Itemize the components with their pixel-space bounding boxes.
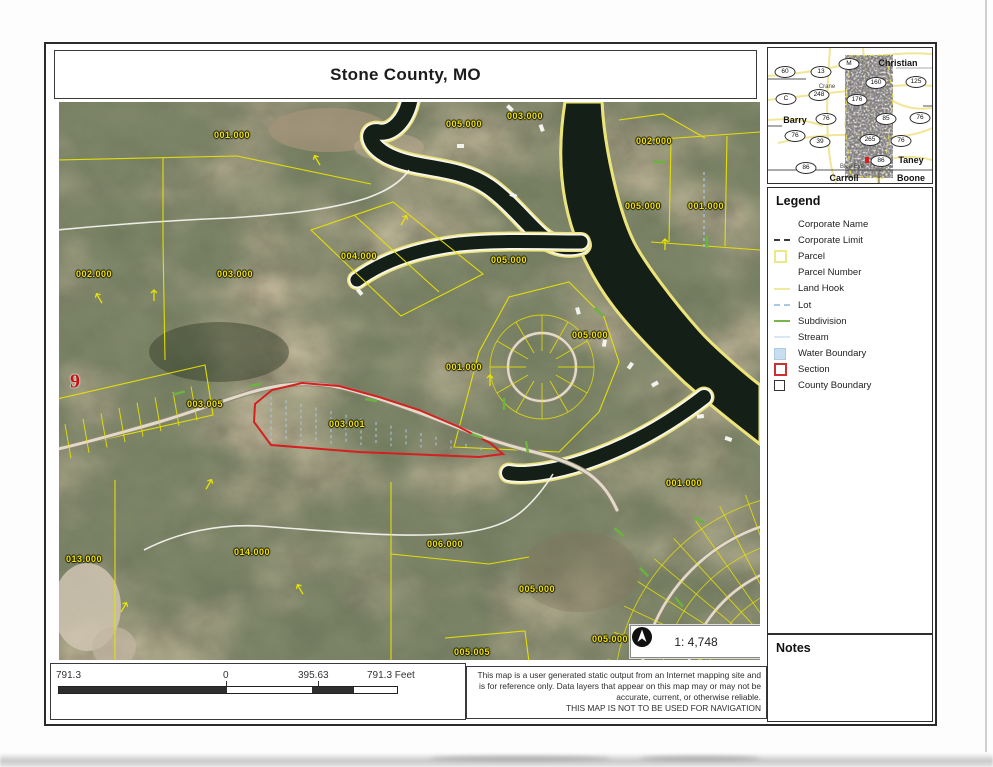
inset-route-shield: 85: [876, 113, 897, 125]
inset-county-label: Carroll: [829, 173, 858, 183]
legend-line-lightblue-icon: [774, 336, 790, 338]
scalebar-bar: [58, 686, 398, 694]
scalebar-segment: [354, 687, 397, 693]
legend-item-label: Section: [798, 364, 830, 375]
legend-title: Legend: [776, 194, 820, 208]
notes-title: Notes: [776, 641, 811, 655]
notes-panel: Notes: [767, 634, 933, 722]
legend-item-label: Parcel Number: [798, 267, 861, 278]
legend-item: Section: [774, 362, 928, 378]
scalebar-label-mid: 395.63: [298, 670, 329, 681]
legend-line-green-icon: [774, 320, 790, 322]
disclaimer-box: This map is a user generated static outp…: [466, 666, 767, 719]
scan-page-edge: [985, 0, 987, 752]
inset-location-marker: [865, 157, 869, 163]
inset-route-shield: 76: [785, 130, 806, 142]
legend-item-label: Corporate Limit: [798, 235, 863, 246]
scalebar-segment: [59, 687, 227, 693]
legend-item: Stream: [774, 329, 928, 345]
legend-symbol-line-yellow: [774, 288, 798, 290]
legend-symbol-line-lightblue: [774, 336, 798, 338]
legend-dashed-black-icon: [774, 239, 790, 241]
scanned-map-page: Stone County, MO: [0, 0, 993, 767]
inset-county-label: Christian: [878, 58, 917, 68]
inset-route-shield: 60: [775, 66, 796, 78]
legend-symbol-line-green: [774, 320, 798, 322]
legend-square-yellow-icon: [774, 250, 787, 263]
scan-smudge: [430, 756, 610, 761]
inset-route-shield: 76: [910, 112, 931, 124]
legend-item-label: County Boundary: [798, 380, 871, 391]
inset-route-shield: 265: [860, 134, 881, 146]
scan-smudge: [640, 756, 760, 761]
legend-item: Parcel: [774, 248, 928, 264]
legend-item-label: Stream: [798, 332, 829, 343]
legend-item: Lot: [774, 297, 928, 313]
legend-symbol-dashed-blue: [774, 304, 798, 306]
inset-route-shield: 86: [796, 162, 817, 174]
scalebar-label-zero: 0: [223, 670, 229, 681]
legend-symbol-square-yellow: [774, 250, 798, 263]
inset-route-shield: C: [776, 93, 797, 105]
legend-item: Parcel Number: [774, 265, 928, 281]
legend-item: Water Boundary: [774, 346, 928, 362]
legend-item: Corporate Limit: [774, 232, 928, 248]
boat-dock: [697, 414, 704, 419]
legend-symbol-square-fill-blue: [774, 348, 798, 360]
inset-route-shield: 76: [816, 113, 837, 125]
disclaimer-line: is for reference only. Data layers that …: [472, 681, 761, 692]
legend-symbol-square-red: [774, 363, 798, 376]
inset-route-shield: 86: [871, 155, 892, 167]
legend-item-label: Parcel: [798, 251, 825, 262]
legend-symbol-dashed-black: [774, 239, 798, 241]
inset-town-label: Blue Eye: [840, 164, 864, 170]
inset-route-shield: 76: [891, 135, 912, 147]
legend-item-label: Subdivision: [798, 316, 847, 327]
legend-item-label: Water Boundary: [798, 348, 866, 359]
inset-route-shield: 176: [847, 94, 868, 106]
inset-county-label: Taney: [898, 155, 923, 165]
legend-item: Subdivision: [774, 313, 928, 329]
scalebar-label-left: 791.3: [56, 670, 81, 681]
legend-square-black-icon: [774, 380, 785, 391]
legend-item: County Boundary: [774, 378, 928, 394]
aerial-map-canvas: [59, 102, 760, 660]
map-layout-frame: Stone County, MO: [44, 42, 937, 726]
terrain-texture: [59, 102, 760, 660]
disclaimer-line: This map is a user generated static outp…: [472, 670, 761, 681]
north-arrow-icon: [631, 626, 653, 648]
map-viewport: 9 001.000005.000003.000002.000005.000001…: [59, 102, 760, 660]
subdivision-mark: [249, 384, 261, 386]
legend-item-label: Corporate Name: [798, 219, 868, 230]
scalebar-label-right: 791.3 Feet: [367, 670, 415, 681]
scalebar-segment: [312, 687, 354, 693]
legend-square-red-icon: [774, 363, 787, 376]
scalebar-segment: [227, 687, 312, 693]
inset-county-label: Boone: [897, 173, 925, 183]
legend-square-fill-blue-icon: [774, 348, 786, 360]
legend-panel: Legend Corporate NameCorporate LimitParc…: [767, 187, 933, 634]
page-title: Stone County, MO: [55, 51, 756, 98]
inset-county-label: Barry: [783, 115, 807, 125]
legend-item-label: Land Hook: [798, 283, 844, 294]
disclaimer-line: accurate, current, or otherwise reliable…: [472, 692, 761, 703]
inset-route-shield: 13: [811, 66, 832, 78]
county-overview-inset-map: ChristianBarryTaneyCarrollBoone6013M125C…: [767, 47, 933, 184]
title-bar: Stone County, MO: [54, 50, 757, 99]
legend-dashed-blue-icon: [774, 304, 790, 306]
legend-item: Land Hook: [774, 281, 928, 297]
disclaimer-line: THIS MAP IS NOT TO BE USED FOR NAVIGATIO…: [472, 703, 761, 714]
inset-route-shield: 248: [809, 89, 830, 101]
inset-route-shield: 125: [906, 76, 927, 88]
scalebar-box: 791.3 0 395.63 791.3 Feet: [50, 663, 466, 720]
inset-route-shield: 39: [810, 136, 831, 148]
inset-route-shield: 160: [866, 77, 887, 89]
inset-town-label: Crane: [819, 84, 835, 90]
legend-symbol-square-black: [774, 380, 798, 391]
legend-line-yellow-icon: [774, 288, 790, 290]
legend-item-list: Corporate NameCorporate LimitParcelParce…: [774, 216, 928, 394]
boat-dock: [457, 144, 464, 148]
legend-item-label: Lot: [798, 300, 811, 311]
scale-indicator-box: 1: 4,748: [630, 625, 760, 658]
inset-route-shield: M: [839, 58, 860, 70]
legend-item: Corporate Name: [774, 216, 928, 232]
